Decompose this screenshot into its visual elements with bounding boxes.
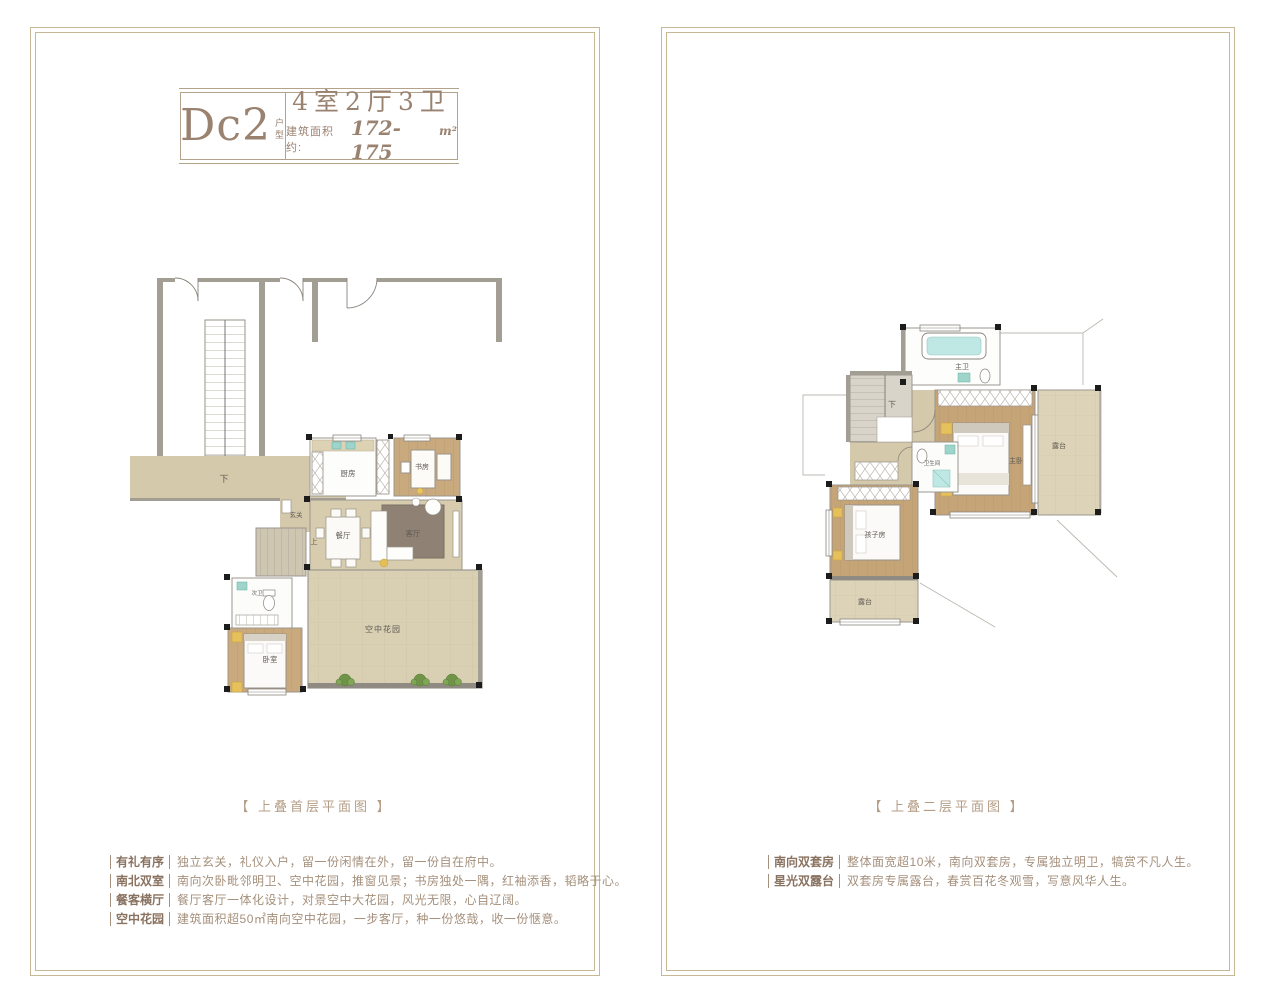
room-label-foyer: 玄关	[290, 510, 304, 519]
sink-icon	[332, 442, 341, 449]
feature-text: 建筑面积超50㎡南向空中花园，一步客厅，种一份悠哉，收一份惬意。	[177, 912, 566, 926]
feature-label: 空中花园	[110, 912, 170, 926]
unit-layout: 4室2厅3卫	[292, 89, 451, 114]
terrace-bottom	[830, 576, 918, 625]
left-feature-list: 有礼有序独立玄关，礼仪入户，留一份闲情在外，留一份自在府中。 南北双室南向次卧毗…	[110, 855, 627, 931]
tv-cabinet	[453, 511, 459, 557]
sink-icon	[958, 373, 970, 382]
room-label-master-bath: 主卫	[955, 362, 969, 371]
room-label-up: 上	[311, 537, 318, 546]
feature-text: 整体面宽超10米，南向双套房，专属独立明卫，犒赏不凡人生。	[847, 855, 1199, 869]
feature-label: 星光双露台	[768, 874, 840, 888]
list-item: 南北双室南向次卧毗邻明卫、空中花园，推窗见景；书房独处一隅，红袖添香，韬略于心。	[110, 874, 627, 888]
unit-header: Dc2 户型 4室2厅3卫 建筑面积约: 172-175 m²	[180, 92, 458, 160]
interior-stairs	[256, 528, 306, 576]
unit-code-cell: Dc2 户型	[181, 93, 286, 159]
room-label-dining: 餐厅	[336, 531, 351, 540]
room-label-bathroom: 卫生间	[924, 459, 941, 467]
unit-code-suffix: 户型	[273, 118, 286, 142]
lamp-icon	[417, 488, 423, 494]
feature-text: 双套房专属露台，春赏百花冬观雪，写意风华人生。	[847, 874, 1135, 888]
room-label-study: 书房	[415, 462, 429, 471]
room-label-master-bedroom: 主卧	[1009, 456, 1023, 465]
unit-area: 建筑面积约: 172-175 m²	[286, 116, 457, 164]
feature-text: 独立玄关，礼仪入户，留一份闲情在外，留一份自在府中。	[177, 855, 502, 869]
feature-text: 餐厅客厅一体化设计，对景空中大花园，风光无限，心自辽阔。	[177, 893, 527, 907]
room-label-kids-room: 孩子房	[865, 530, 886, 539]
feature-text: 南向次卧毗邻明卫、空中花园，推窗见景；书房独处一隅，红袖添香，韬略于心。	[177, 874, 627, 888]
feature-label: 南向双套房	[768, 855, 840, 869]
floorplan-first-floor: 下 厨房 书房	[120, 270, 510, 700]
area-unit: m²	[439, 124, 457, 138]
armchair	[425, 499, 441, 515]
kitchen	[310, 438, 389, 496]
nightstand	[941, 423, 952, 434]
sink-icon	[346, 442, 355, 449]
nightstand	[833, 551, 842, 560]
feature-label: 南北双室	[110, 874, 170, 888]
floorplan-second-floor: 主卫 主卧 露台	[795, 315, 1125, 630]
list-item: 餐客横厅餐厅客厅一体化设计，对景空中大花园，风光无限，心自辽阔。	[110, 893, 627, 907]
brochure-page: Dc2 户型 4室2厅3卫 建筑面积约: 172-175 m²	[0, 0, 1269, 999]
area-label: 建筑面积约:	[286, 123, 347, 155]
window-bench	[1023, 425, 1031, 485]
list-item: 空中花园建筑面积超50㎡南向空中花园，一步客厅，种一份悠哉，收一份惬意。	[110, 912, 627, 926]
room-label-sky-garden: 空中花园	[365, 624, 401, 634]
nightstand	[232, 682, 242, 692]
list-item: 星光双露台双套房专属露台，春赏百花冬观雪，写意风华人生。	[768, 874, 1199, 888]
room-label-living: 客厅	[406, 528, 421, 538]
room-label-down: 下	[219, 474, 228, 484]
nightstand	[833, 508, 842, 517]
entry-door-icons	[175, 278, 377, 308]
area-value: 172-175	[351, 116, 438, 164]
room-label-terrace-bottom: 露台	[858, 597, 872, 606]
room-label-stairs-down: 下	[888, 400, 896, 409]
feature-label: 餐客横厅	[110, 893, 170, 907]
unit-code: Dc2	[180, 104, 271, 148]
sofa	[371, 511, 387, 561]
right-feature-list: 南向双套房整体面宽超10米，南向双套房，专属独立明卫，犒赏不凡人生。 星光双露台…	[768, 855, 1199, 893]
room-label-bath: 次卫	[251, 589, 263, 597]
master-bath	[901, 325, 1000, 385]
unit-info-cell: 4室2厅3卫 建筑面积约: 172-175 m²	[286, 93, 457, 159]
room-label-kitchen: 厨房	[341, 468, 356, 478]
nightstand	[232, 632, 242, 642]
sink-icon	[237, 582, 247, 590]
feature-label: 有礼有序	[110, 855, 170, 869]
list-item: 南向双套房整体面宽超10米，南向双套房，专属独立明卫，犒赏不凡人生。	[768, 855, 1199, 869]
closet	[855, 462, 898, 480]
terrace-right	[1038, 390, 1100, 515]
toilet-icon	[980, 369, 990, 383]
caption-second-floor: 【 上叠二层平面图 】	[661, 796, 1233, 815]
room-label-bedroom: 卧室	[263, 654, 278, 664]
bathroom	[232, 578, 292, 628]
caption-first-floor: 【 上叠首层平面图 】	[30, 796, 598, 815]
stairwell	[205, 320, 245, 456]
toilet-icon	[263, 590, 275, 596]
sink-icon	[945, 445, 955, 454]
room-label-terrace-right: 露台	[1052, 441, 1066, 450]
list-item: 有礼有序独立玄关，礼仪入户，留一份闲情在外，留一份自在府中。	[110, 855, 627, 869]
